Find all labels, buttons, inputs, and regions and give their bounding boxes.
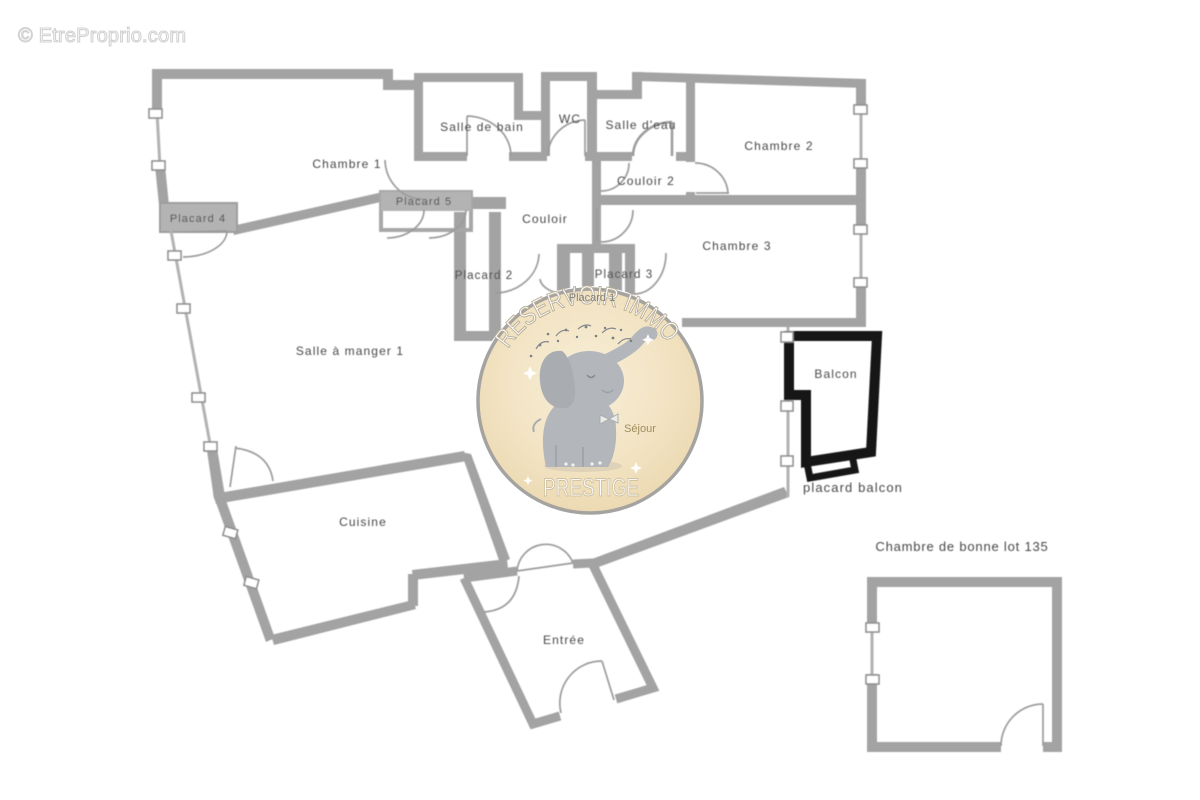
svg-text:Entrée: Entrée — [543, 633, 585, 647]
svg-text:Balcon: Balcon — [814, 367, 857, 381]
svg-text:Chambre 2: Chambre 2 — [744, 139, 813, 153]
svg-text:placard balcon: placard balcon — [803, 480, 903, 495]
svg-text:Chambre 3: Chambre 3 — [702, 239, 771, 253]
svg-text:Couloir: Couloir — [522, 212, 568, 226]
svg-text:Placard 3: Placard 3 — [595, 269, 653, 281]
svg-text:Cuisine: Cuisine — [339, 515, 387, 529]
svg-text:Placard 4: Placard 4 — [170, 213, 226, 225]
svg-text:Placard 1: Placard 1 — [569, 292, 615, 304]
svg-text:Chambre de bonne lot 135: Chambre de bonne lot 135 — [875, 539, 1048, 554]
svg-text:Chambre 1: Chambre 1 — [312, 157, 381, 171]
svg-text:Salle à manger 1: Salle à manger 1 — [296, 344, 404, 358]
svg-text:Couloir 2: Couloir 2 — [617, 174, 675, 188]
svg-text:Séjour: Séjour — [624, 423, 656, 435]
svg-text:Placard 5: Placard 5 — [396, 196, 452, 208]
svg-text:Salle d'eau: Salle d'eau — [605, 118, 676, 132]
svg-text:PRESTIGE: PRESTIGE — [543, 474, 639, 502]
svg-text:Placard 2: Placard 2 — [455, 270, 513, 282]
svg-text:WC: WC — [559, 112, 581, 126]
svg-text:Salle de bain: Salle de bain — [440, 120, 524, 134]
svg-text:© EtreProprio.com: © EtreProprio.com — [18, 25, 186, 47]
